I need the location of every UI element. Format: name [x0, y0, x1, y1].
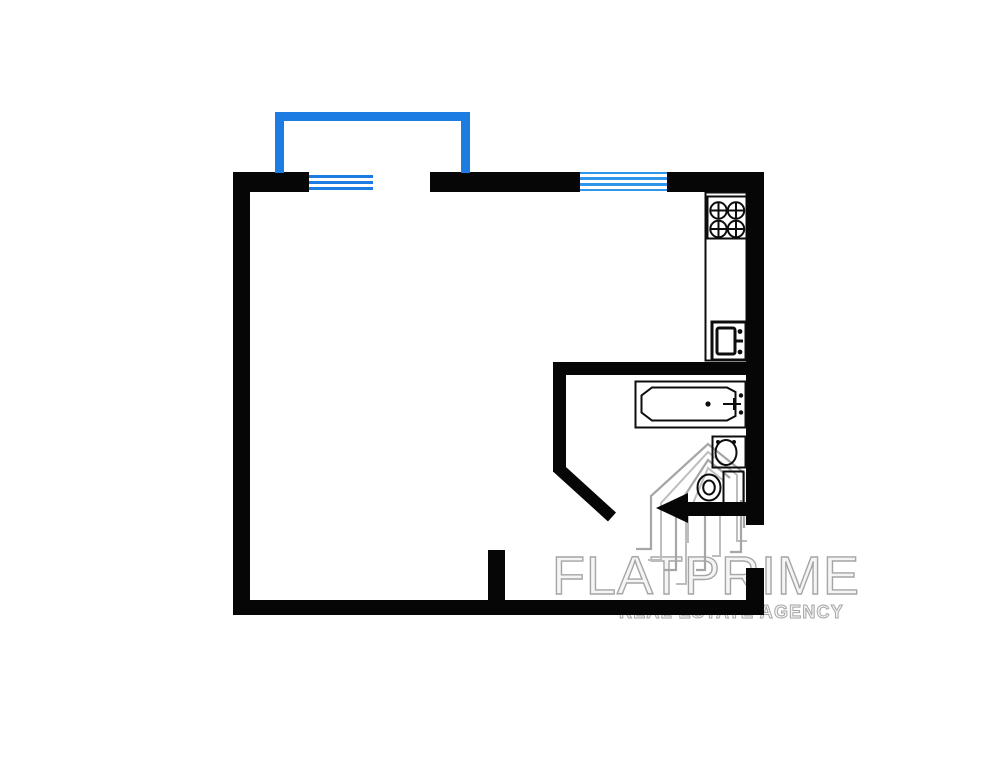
wall-top-middle	[430, 172, 580, 192]
wall-left	[233, 172, 250, 615]
toilet-icon	[698, 472, 744, 504]
window-left	[309, 172, 373, 192]
stove-burners-icon	[708, 197, 747, 239]
wall-bottom	[233, 600, 764, 615]
wall-right-lower	[746, 568, 764, 615]
floor-plan-canvas: FLATPRIME REAL ESTATE AGENCY	[0, 0, 1000, 758]
window-stripe	[580, 172, 667, 174]
kitchen-sink-icon	[712, 322, 746, 360]
bathroom-wall-left	[553, 362, 566, 472]
window-stripe	[309, 175, 373, 178]
window-stripe	[309, 187, 373, 190]
wall-right-upper	[746, 172, 764, 525]
balcony-outline-left	[275, 112, 284, 173]
hall-wall-stub	[488, 550, 505, 600]
balcony-outline-right	[461, 112, 470, 173]
window-right	[580, 172, 667, 192]
window-stripe	[580, 177, 667, 181]
bathtub-icon	[636, 382, 746, 428]
balcony-outline-top	[275, 112, 470, 121]
window-stripe	[580, 183, 667, 187]
window-stripe	[309, 181, 373, 184]
window-stripe	[580, 189, 667, 191]
bathroom-wall-top	[553, 362, 746, 375]
bathroom-wall-bottom	[683, 502, 746, 516]
diagonal-wall	[557, 467, 612, 517]
fixtures-layer	[0, 0, 1000, 758]
washbasin-icon	[713, 437, 746, 468]
